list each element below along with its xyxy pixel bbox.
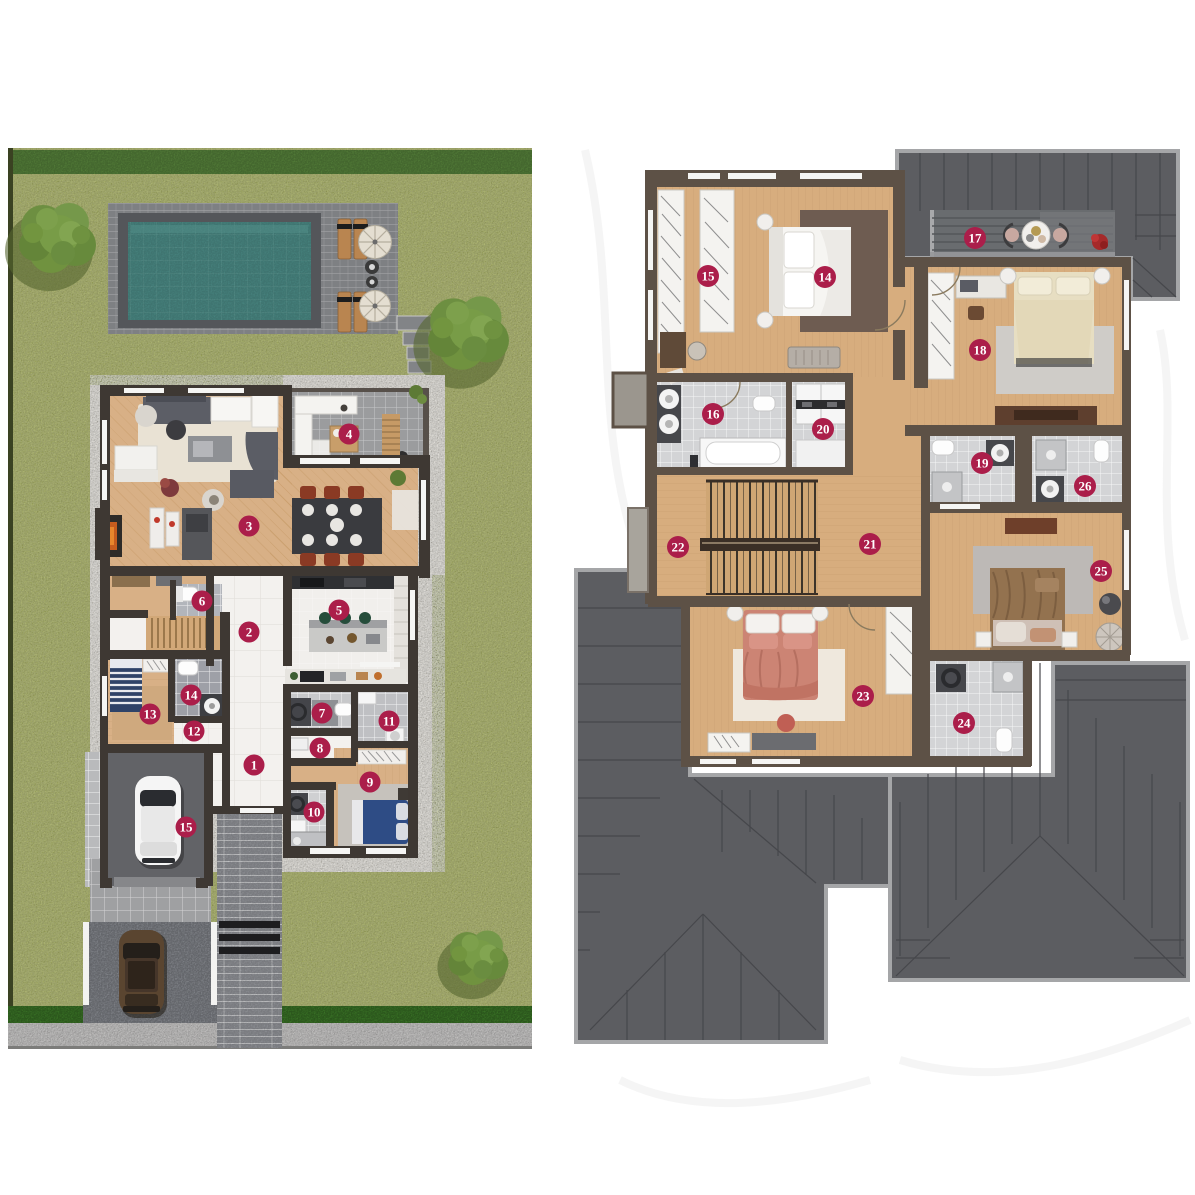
svg-text:14: 14 (819, 270, 833, 285)
svg-text:19: 19 (976, 456, 990, 471)
svg-text:12: 12 (188, 724, 201, 739)
svg-text:14: 14 (185, 688, 199, 703)
svg-text:25: 25 (1095, 564, 1109, 579)
svg-text:15: 15 (180, 820, 194, 835)
svg-text:6: 6 (199, 594, 206, 609)
svg-text:5: 5 (336, 603, 343, 618)
svg-text:23: 23 (857, 689, 871, 704)
svg-text:20: 20 (817, 422, 830, 437)
svg-text:3: 3 (246, 519, 253, 534)
svg-text:16: 16 (707, 407, 721, 422)
svg-text:7: 7 (319, 706, 326, 721)
svg-text:2: 2 (246, 625, 253, 640)
svg-text:18: 18 (974, 343, 988, 358)
svg-text:17: 17 (969, 231, 983, 246)
svg-text:15: 15 (702, 269, 716, 284)
svg-text:11: 11 (383, 714, 395, 729)
svg-text:26: 26 (1079, 479, 1093, 494)
svg-text:21: 21 (864, 537, 877, 552)
svg-text:10: 10 (308, 805, 321, 820)
svg-text:24: 24 (958, 716, 972, 731)
svg-text:13: 13 (144, 707, 158, 722)
svg-text:8: 8 (317, 741, 324, 756)
svg-text:9: 9 (367, 775, 374, 790)
svg-text:22: 22 (672, 540, 685, 555)
svg-text:1: 1 (251, 758, 258, 773)
svg-text:4: 4 (346, 427, 353, 442)
